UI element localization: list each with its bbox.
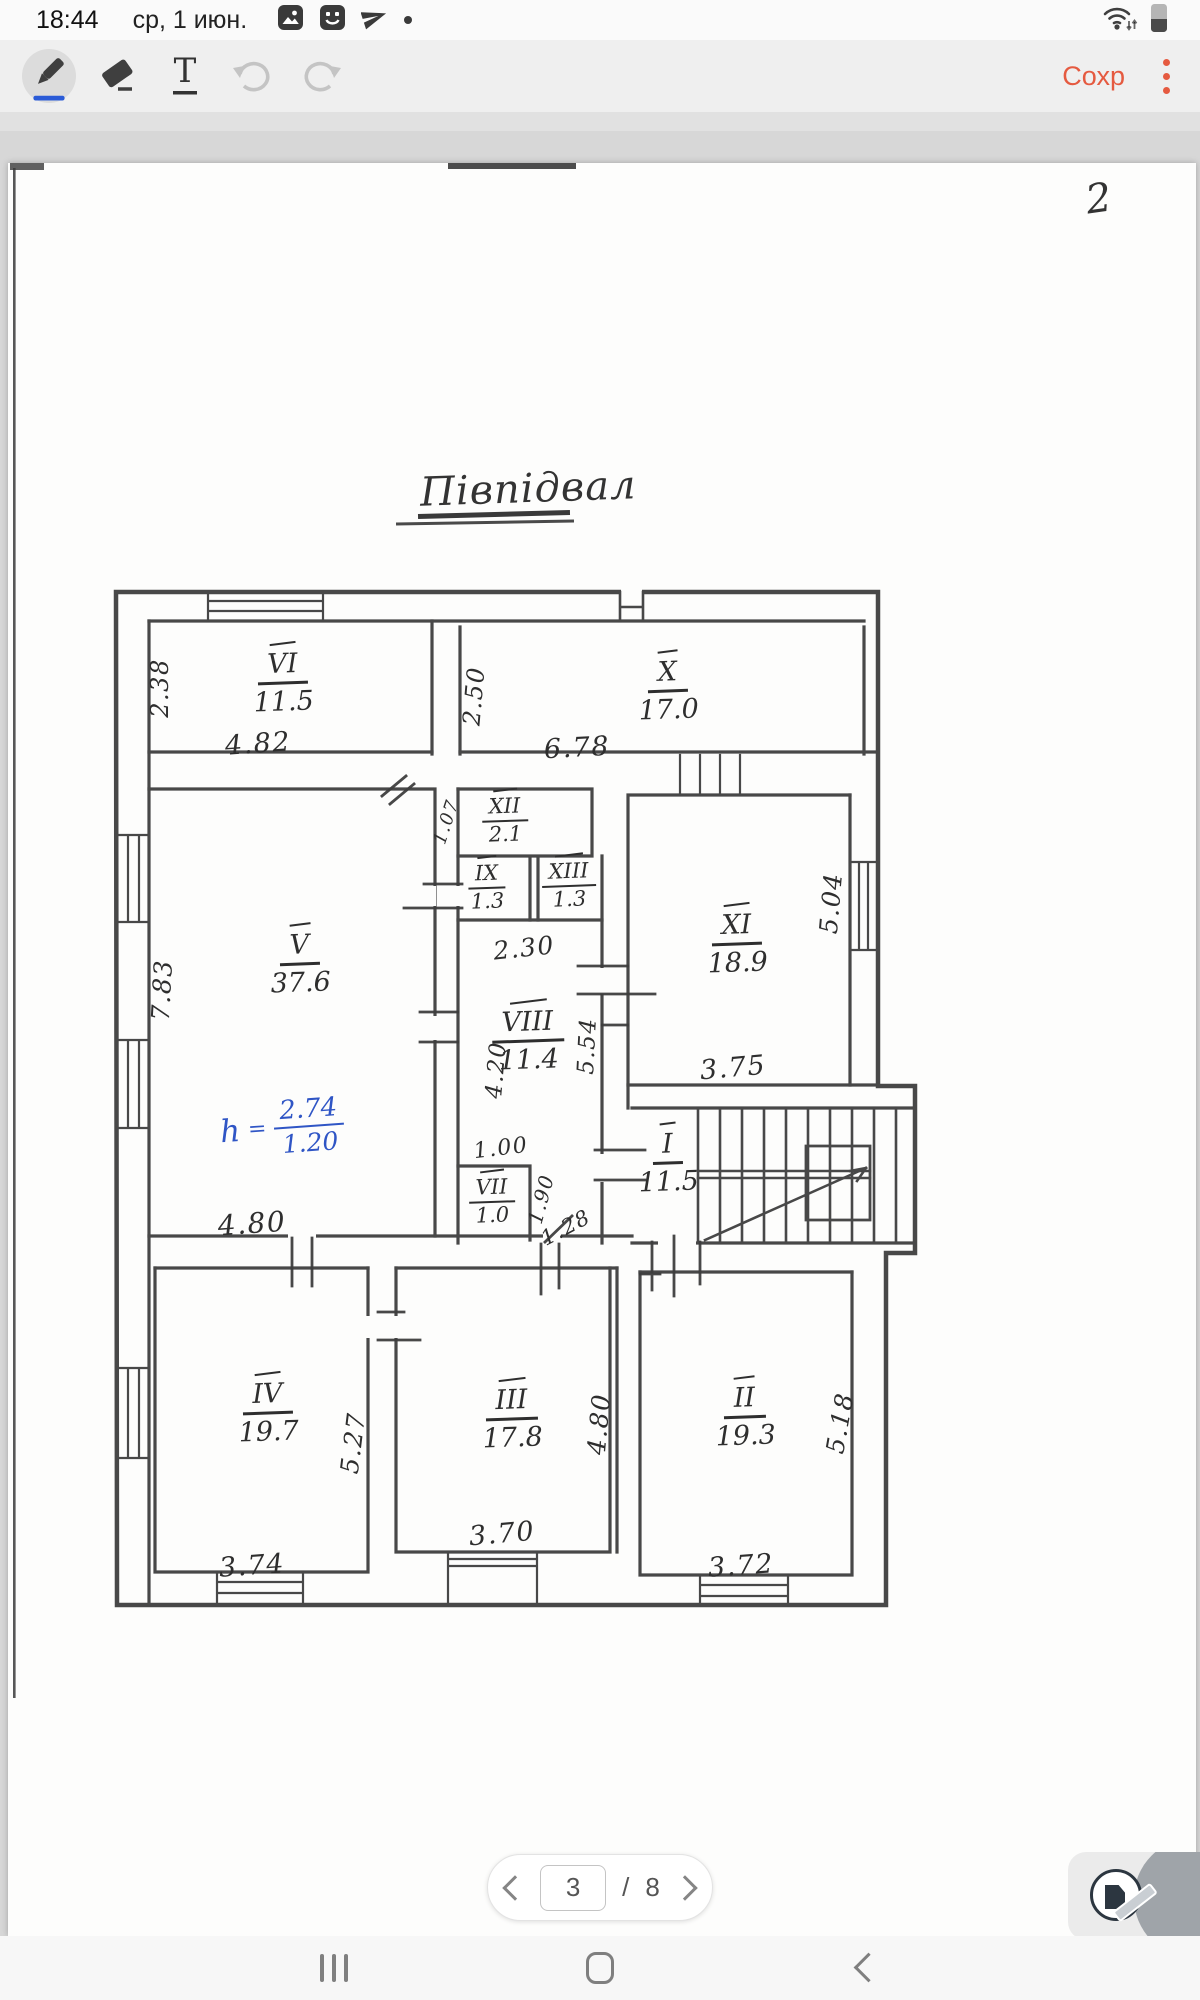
text-icon: T: [163, 51, 207, 101]
pen-tool-button[interactable]: [22, 49, 76, 103]
text-tool-button[interactable]: T: [158, 49, 212, 103]
wifi-icon: [1102, 1, 1138, 40]
clock: 18:44: [36, 6, 99, 35]
pen-icon: [24, 50, 74, 102]
edit-page-fab[interactable]: [1090, 1869, 1142, 1921]
more-notification-dot: [404, 16, 412, 24]
toolbar-shadow-band: [0, 112, 1200, 131]
eraser-tool-button[interactable]: [90, 49, 144, 103]
image-thumbnail-icon: [277, 4, 304, 36]
chevron-left-icon[interactable]: [502, 1875, 527, 1900]
handwritten-height-note: h = 2.74 1.20: [218, 1094, 346, 1162]
redo-icon: [298, 56, 344, 96]
overflow-menu-icon[interactable]: [1159, 55, 1174, 98]
date: ср, 1 июн.: [133, 6, 248, 35]
android-navigation-bar: [0, 1936, 1200, 2000]
back-button[interactable]: [854, 1953, 884, 1983]
eraser-icon: [94, 53, 140, 99]
current-page-input[interactable]: 3: [540, 1865, 606, 1911]
home-button[interactable]: [586, 1952, 614, 1984]
notification-icons: [277, 4, 412, 37]
undo-icon: [230, 56, 276, 96]
recents-button[interactable]: [320, 1954, 348, 1982]
edit-page-fab-panel: [1068, 1852, 1200, 1940]
status-bar: 18:44 ср, 1 июн.: [0, 0, 1200, 40]
system-status-icons: [1102, 1, 1170, 40]
undo-button[interactable]: [226, 49, 280, 103]
svg-text:T: T: [174, 51, 197, 91]
scanned-page-canvas[interactable]: [8, 163, 1196, 1936]
plan-title: Півпідвал: [419, 462, 637, 516]
battery-icon: [1148, 2, 1170, 39]
document-viewer: [0, 131, 1200, 1936]
total-pages: 8: [645, 1872, 659, 1903]
redo-button[interactable]: [294, 49, 348, 103]
telegram-icon: [361, 4, 389, 37]
save-button[interactable]: Сохр: [1062, 61, 1125, 92]
page-navigation: 3 / 8: [487, 1854, 713, 1921]
chevron-right-icon[interactable]: [672, 1875, 697, 1900]
page-separator: /: [622, 1872, 629, 1903]
editor-toolbar: T Сохр: [0, 40, 1200, 112]
smiley-app-icon: [319, 4, 346, 36]
